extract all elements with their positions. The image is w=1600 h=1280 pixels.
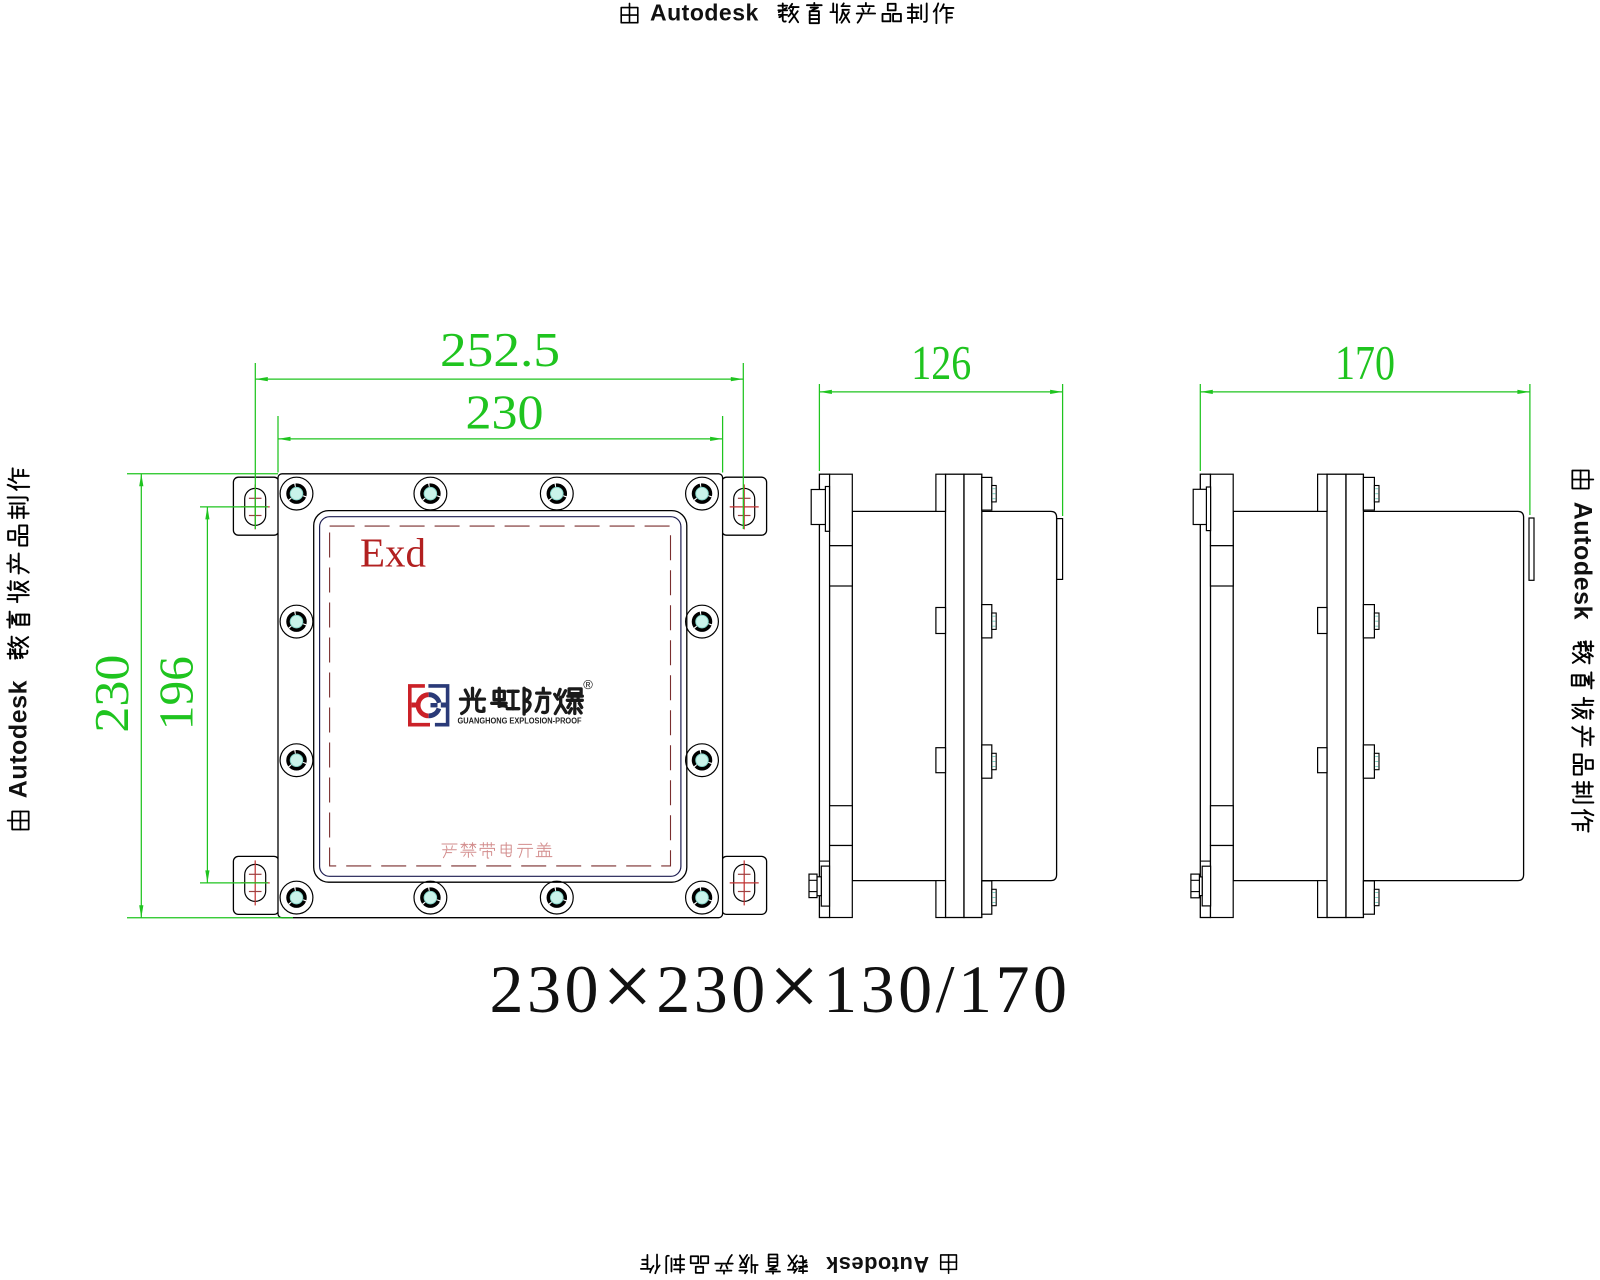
svg-text:196: 196 [149,656,204,730]
svg-text:230: 230 [84,655,139,733]
svg-text:Autodesk: Autodesk [1569,502,1597,620]
svg-text:230: 230 [466,385,544,440]
svg-text:Exd: Exd [360,530,426,576]
svg-text:GUANGHONG EXPLOSION-PROOF: GUANGHONG EXPLOSION-PROOF [458,717,582,726]
svg-text:Autodesk: Autodesk [825,1252,929,1277]
svg-text:126: 126 [911,335,971,390]
svg-text:252.5: 252.5 [440,322,560,377]
svg-text:Autodesk: Autodesk [4,680,32,798]
svg-text:230×230×130/170: 230×230×130/170 [490,937,1071,1036]
svg-text:170: 170 [1335,335,1395,390]
svg-text:®: ® [583,677,593,692]
svg-text:Autodesk: Autodesk [650,0,759,26]
